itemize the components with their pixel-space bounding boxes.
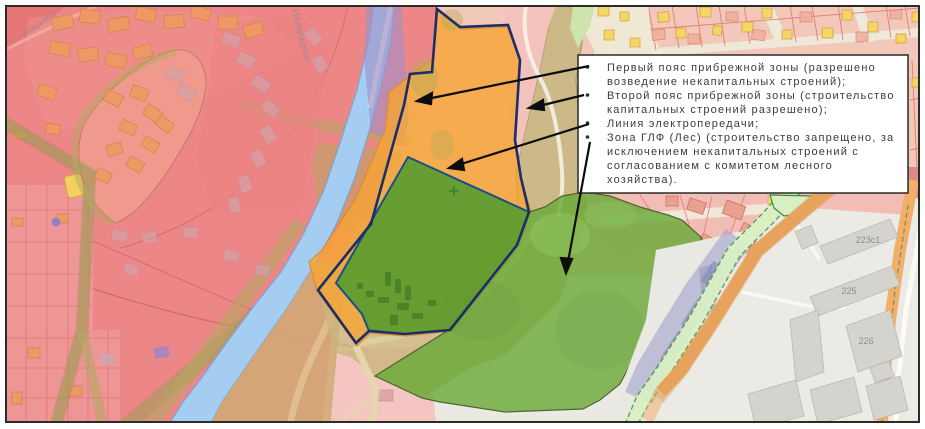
svg-text:225: 225	[841, 286, 856, 296]
svg-text:Зона ГЛФ (Лес) (строительство: Зона ГЛФ (Лес) (строительство запрещено,…	[607, 132, 894, 144]
svg-text:согласованием с комитетом лесн: согласованием с комитетом лесного	[607, 160, 833, 172]
svg-text:Линия электропередачи;: Линия электропередачи;	[607, 118, 759, 130]
svg-text:Второй пояс прибрежной зоны (с: Второй пояс прибрежной зоны (строительст…	[607, 90, 895, 102]
svg-text:возведение некапитальных строе: возведение некапитальных строений);	[607, 76, 846, 88]
svg-text:226: 226	[858, 336, 873, 346]
svg-text:хозяйства).: хозяйства).	[607, 174, 678, 186]
svg-text:исключением некапитальных стро: исключением некапитальных строений с	[607, 146, 859, 158]
svg-text:223с1: 223с1	[856, 235, 881, 245]
svg-text:капитальных строений разрешено: капитальных строений разрешено);	[607, 104, 828, 116]
svg-text:Первый пояс прибрежной зоны (р: Первый пояс прибрежной зоны (разрешено	[607, 62, 876, 74]
